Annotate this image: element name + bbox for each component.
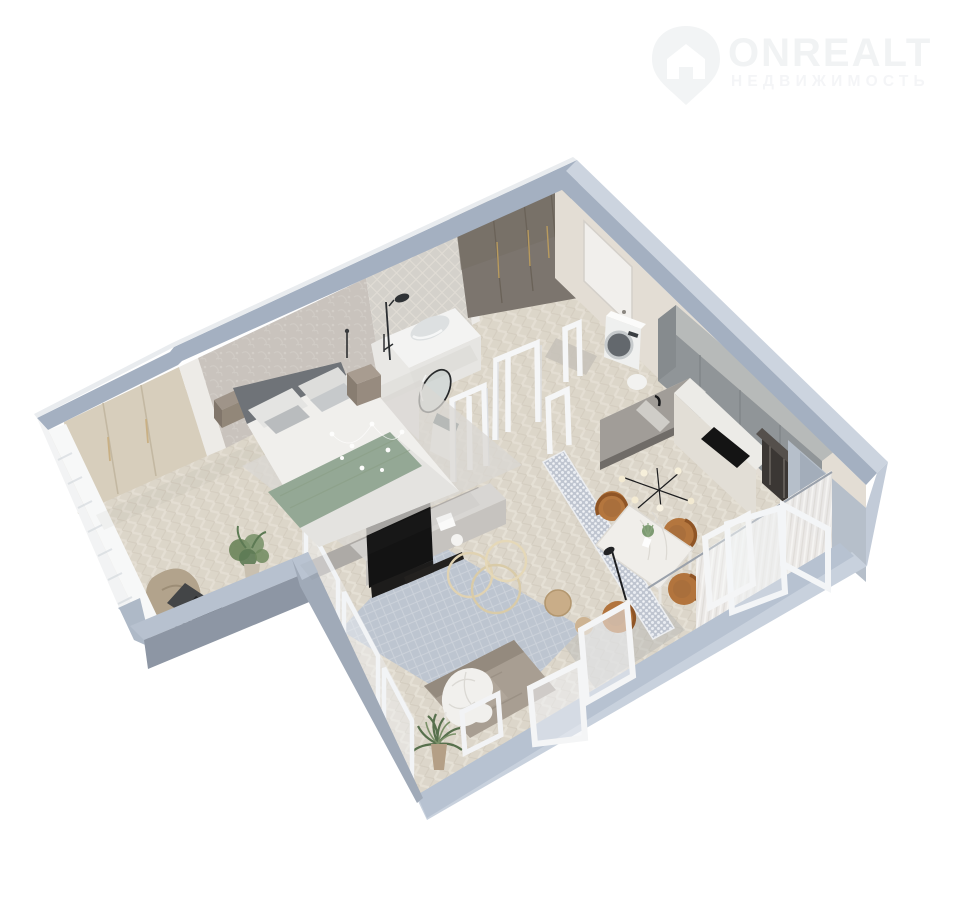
svg-text:ONREALT: ONREALT	[728, 31, 932, 75]
svg-text:НЕДВИЖИМОСТЬ: НЕДВИЖИМОСТЬ	[731, 73, 930, 90]
